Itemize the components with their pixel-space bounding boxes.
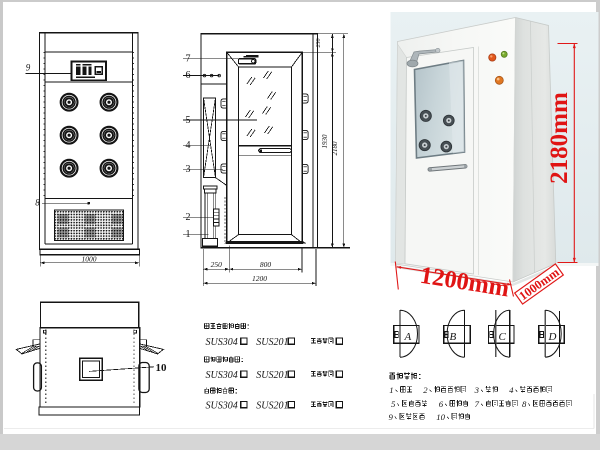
svg-text:10: 10 [436, 412, 445, 422]
svg-text:8: 8 [522, 399, 527, 409]
svg-text:7: 7 [186, 54, 191, 65]
svg-text:6: 6 [186, 70, 191, 81]
svg-text:2: 2 [423, 385, 428, 395]
svg-text:SUS304: SUS304 [206, 401, 238, 412]
svg-text:9: 9 [26, 63, 31, 73]
svg-text:5: 5 [391, 399, 396, 409]
svg-text:3: 3 [186, 164, 191, 175]
svg-text:800: 800 [260, 260, 272, 269]
svg-text:2180: 2180 [331, 141, 339, 156]
svg-text:2: 2 [186, 212, 191, 223]
svg-text:5: 5 [186, 115, 191, 126]
svg-text:SUS201: SUS201 [256, 370, 288, 381]
svg-text:6: 6 [439, 399, 444, 409]
svg-text:SUS304: SUS304 [206, 370, 238, 381]
svg-text:SUS304: SUS304 [206, 337, 238, 348]
svg-text:1: 1 [186, 229, 191, 240]
svg-text:1930: 1930 [321, 134, 329, 149]
svg-text:7: 7 [475, 399, 480, 409]
svg-text:1000: 1000 [82, 254, 97, 263]
svg-text:1: 1 [389, 385, 393, 395]
svg-text:250: 250 [211, 260, 223, 269]
svg-text:250: 250 [316, 39, 322, 48]
svg-text:C: C [499, 331, 507, 343]
svg-text:4: 4 [186, 140, 191, 151]
svg-text:1200: 1200 [252, 274, 267, 283]
svg-text:3: 3 [474, 385, 480, 395]
svg-text:SUS201: SUS201 [256, 401, 288, 412]
svg-text:D: D [548, 331, 557, 343]
svg-text:A: A [404, 331, 412, 343]
svg-text:10: 10 [156, 362, 168, 374]
svg-text:9: 9 [389, 412, 394, 422]
svg-text:2180mm: 2180mm [546, 92, 573, 184]
svg-text:SUS201: SUS201 [256, 337, 288, 348]
svg-text:8: 8 [35, 198, 40, 208]
svg-text:B: B [450, 331, 457, 343]
svg-text:4: 4 [509, 385, 514, 395]
